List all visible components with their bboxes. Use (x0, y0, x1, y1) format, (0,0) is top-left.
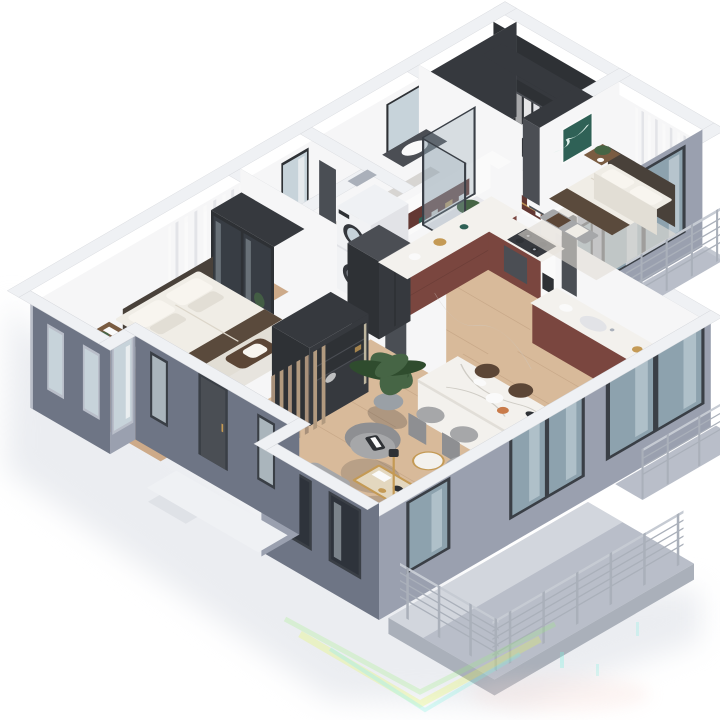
wing-window-2 (83, 344, 100, 420)
wing-window-1 (47, 323, 64, 399)
floorplan-render-canvas (0, 0, 720, 720)
entry-tall-window (112, 335, 133, 435)
closet-side-wardrobe (523, 118, 540, 206)
isometric-floorplan (0, 0, 720, 720)
building (7, 2, 720, 712)
front-window-1 (150, 351, 168, 427)
